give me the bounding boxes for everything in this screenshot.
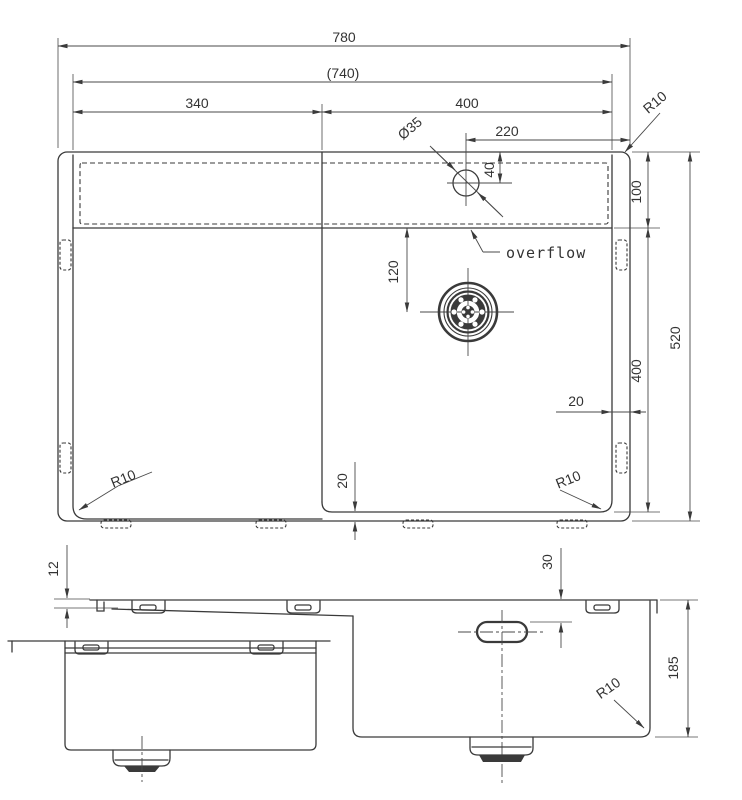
overflow-callout: overflow [471,230,586,262]
dim-overall-width: 780 [58,29,630,148]
dim-bowl-length-label: 400 [628,359,644,383]
dim-drain-from-top-label: 120 [385,260,401,284]
clip-left-1 [60,240,71,270]
radius-bottom-left-label: R10 [108,466,138,491]
left-bowl-drain [113,750,170,772]
dim-bowl-depth-label: 185 [665,656,681,680]
overflow-label: overflow [506,244,586,262]
sink-outer-rim [58,152,630,521]
radius-bottom-right-callout: R10 [553,467,601,509]
dim-drain-from-top: 120 [385,228,407,312]
radius-front-callout: R10 [593,674,644,728]
right-bowl [322,228,612,512]
dim-rim-thickness-label: 12 [45,561,61,577]
dim-bowl-widths: 340 400 [73,95,612,150]
radius-top-right-label: R10 [640,88,670,117]
dim-bowl-depth: 185 [655,600,698,737]
dim-right-bowl-width-label: 400 [455,95,479,111]
dim-left-bowl-width-label: 340 [185,95,209,111]
dim-rim-gap-bottom: 20 [334,462,355,540]
dim-ledge-depth-label: 100 [628,180,644,204]
clip-left-2 [60,443,71,473]
dim-rim-gap-bottom-label: 20 [334,473,350,489]
dim-overall-depth-label: 520 [667,326,683,350]
dim-faucet-from-right-label: 220 [495,123,519,139]
clip-tab-2 [287,601,320,613]
left-bowl-profile [8,641,330,782]
dim-faucet-diameter-label: Ø35 [395,113,426,142]
main-bowl-profile [90,600,657,784]
radius-front-label: R10 [593,674,623,702]
dim-inner-width: (740) [73,65,612,150]
drain-strainer-icon [420,268,514,356]
radius-top-right-callout: R10 [625,88,670,152]
sink-technical-drawing: 780 (740) 340 400 220 Ø35 40 [0,0,742,800]
dim-faucet-from-top: 40 [481,152,500,183]
dim-faucet-from-right: 220 [466,123,630,140]
plan-view: 780 (740) 340 400 220 Ø35 40 [58,29,700,540]
main-bowl-drain [470,737,533,762]
clip-tab-1 [132,601,165,613]
radius-bottom-left-callout: R10 [79,466,152,510]
section-view: 12 30 185 R10 [8,545,698,784]
dim-faucet-from-top-label: 40 [481,162,497,178]
clip-tab-3 [586,601,619,613]
drawing-sheet: 780 (740) 340 400 220 Ø35 40 [0,0,742,800]
dim-overflow-from-top-label: 30 [539,554,555,570]
radius-bottom-right-label: R10 [553,467,583,492]
dim-overflow-from-top: 30 [530,548,572,648]
clip-right-1 [616,240,627,270]
dim-overall-width-label: 780 [332,29,356,45]
dim-rim-gap-right: 20 [556,393,646,412]
dim-rim-thickness: 12 [45,545,118,628]
dim-overall-depth: 520 [632,152,700,521]
dim-rim-gap-right-label: 20 [568,393,584,409]
overflow-channel-dashed [80,163,608,224]
clip-right-2 [616,443,627,473]
dim-inner-width-label: (740) [327,65,360,81]
